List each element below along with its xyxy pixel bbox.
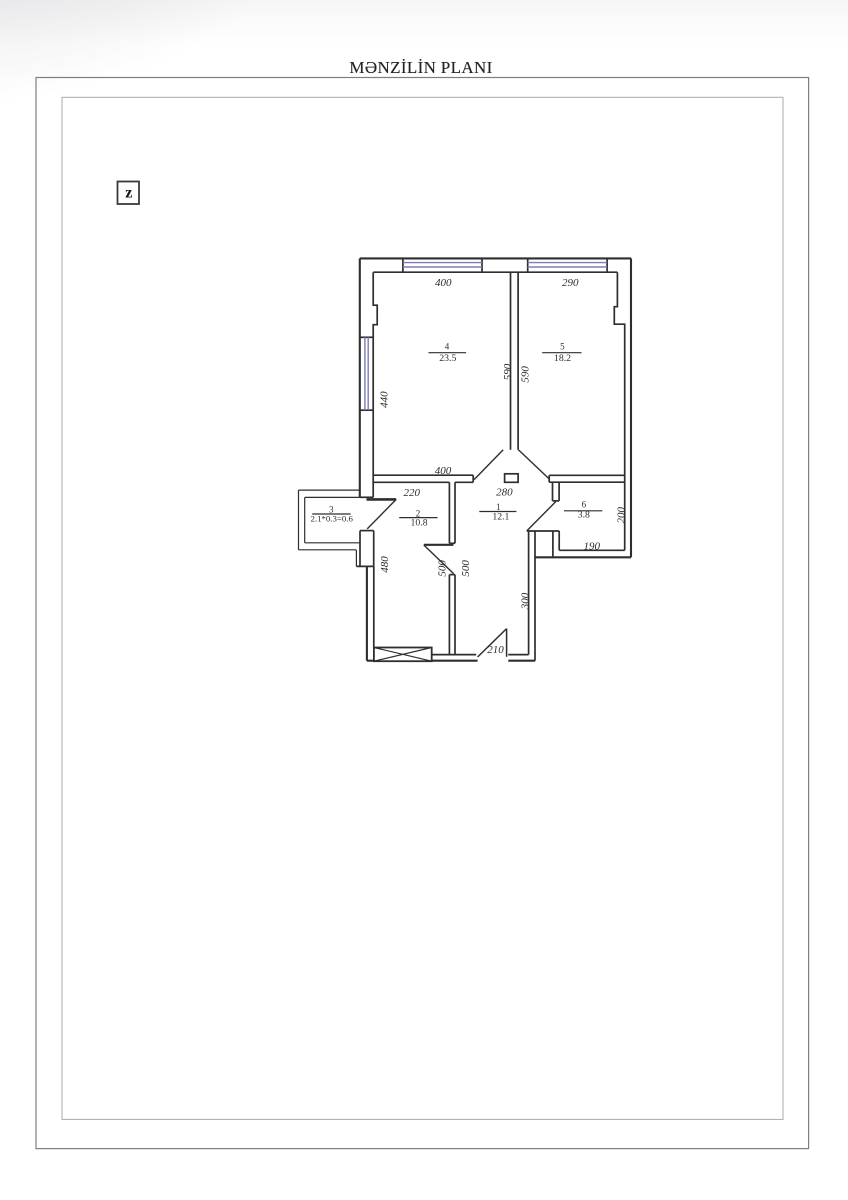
- svg-text:200: 200: [615, 506, 627, 523]
- svg-text:480: 480: [379, 556, 391, 573]
- svg-text:590: 590: [502, 363, 514, 380]
- svg-text:190: 190: [583, 541, 600, 553]
- svg-text:23.5: 23.5: [439, 353, 456, 364]
- svg-text:500: 500: [460, 560, 472, 577]
- svg-text:280: 280: [496, 486, 513, 498]
- svg-text:210: 210: [487, 644, 504, 656]
- svg-text:500: 500: [437, 560, 449, 577]
- svg-text:590: 590: [519, 366, 531, 383]
- svg-text:6: 6: [582, 499, 587, 509]
- svg-text:300: 300: [520, 592, 532, 610]
- svg-text:5: 5: [560, 342, 565, 352]
- svg-text:z: z: [125, 185, 132, 202]
- svg-text:400: 400: [435, 465, 452, 477]
- svg-text:12.1: 12.1: [492, 511, 509, 522]
- svg-text:1: 1: [496, 502, 501, 512]
- svg-text:18.2: 18.2: [554, 353, 571, 364]
- svg-text:220: 220: [403, 487, 420, 499]
- svg-text:2.1*0.3=0.6: 2.1*0.3=0.6: [311, 514, 354, 524]
- svg-text:290: 290: [562, 277, 579, 289]
- svg-text:10.8: 10.8: [411, 518, 428, 529]
- svg-text:400: 400: [435, 277, 452, 289]
- svg-text:4: 4: [445, 342, 450, 352]
- svg-text:440: 440: [379, 391, 391, 408]
